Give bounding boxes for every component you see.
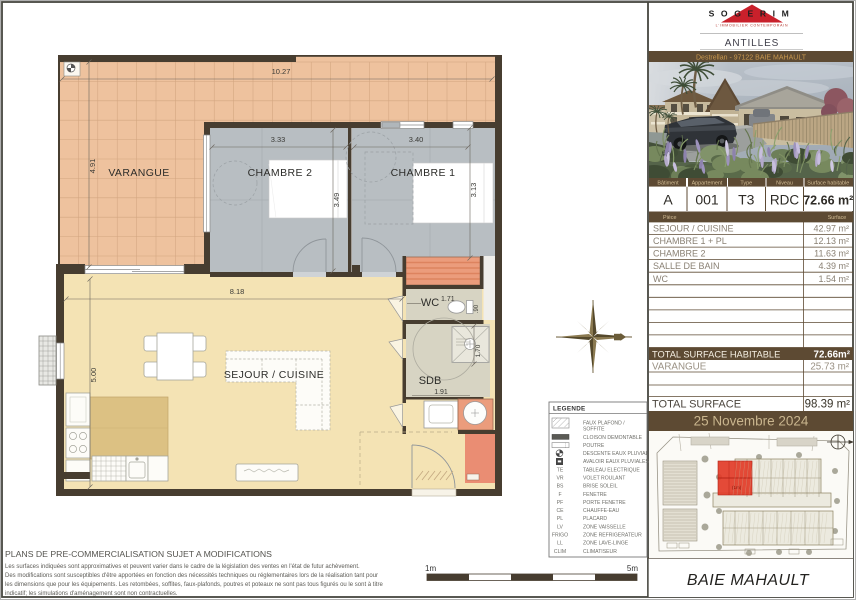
svg-text:TOTAL SURFACE HABITABLE: TOTAL SURFACE HABITABLE (652, 349, 780, 359)
svg-text:Type: Type (740, 181, 752, 187)
svg-text:SEJOUR / CUISINE: SEJOUR / CUISINE (224, 369, 324, 381)
svg-text:F: F (558, 492, 561, 498)
svg-text:CHAMBRE 2: CHAMBRE 2 (653, 249, 706, 259)
svg-text:5.00: 5.00 (89, 368, 98, 383)
svg-text:ZONE VAISSELLE: ZONE VAISSELLE (583, 524, 626, 530)
svg-text:CHAMBRE 1: CHAMBRE 1 (391, 167, 456, 179)
svg-text:42.97 m²: 42.97 m² (813, 224, 849, 234)
svg-text:001: 001 (695, 192, 719, 208)
svg-text:indicatif; les simulations d'a: indicatif; les simulations d'aménagement… (5, 591, 178, 597)
svg-text:CE: CE (556, 508, 564, 514)
svg-text:BRISE SOLEIL: BRISE SOLEIL (583, 484, 618, 490)
svg-text:PF: PF (557, 500, 564, 506)
svg-text:POUTRE: POUTRE (583, 443, 605, 449)
svg-text:CLIM: CLIM (554, 549, 566, 555)
svg-text:A: A (663, 192, 673, 208)
svg-text:72.66m²: 72.66m² (814, 350, 851, 361)
svg-text:VR: VR (556, 476, 563, 482)
svg-text:4.39 m²: 4.39 m² (818, 261, 849, 271)
svg-text:CHAUFFE-EAU: CHAUFFE-EAU (583, 508, 620, 514)
svg-text:PL: PL (557, 516, 563, 522)
svg-text:CLIMATISEUR: CLIMATISEUR (583, 549, 617, 555)
svg-text:SEJOUR / CUISINE: SEJOUR / CUISINE (653, 224, 734, 234)
svg-text:11.63 m²: 11.63 m² (814, 249, 849, 259)
svg-text:1.54 m²: 1.54 m² (818, 274, 849, 284)
svg-text:Bâtiment: Bâtiment (657, 181, 679, 187)
svg-text:VARANGUE: VARANGUE (108, 167, 169, 179)
svg-text:3.49: 3.49 (332, 193, 341, 208)
svg-text:10.27: 10.27 (272, 67, 291, 76)
svg-text:72.66 m²: 72.66 m² (803, 194, 853, 208)
svg-text:3.33: 3.33 (271, 135, 286, 144)
svg-text:Surface habitable: Surface habitable (807, 181, 849, 187)
svg-text:ANTILLES: ANTILLES (725, 38, 779, 49)
svg-text:Pièce: Pièce (663, 215, 677, 221)
svg-text:Appartement: Appartement (692, 181, 723, 187)
svg-text:5m: 5m (627, 564, 638, 573)
svg-text:98.39 m²: 98.39 m² (805, 399, 851, 411)
svg-text:1m: 1m (425, 564, 436, 573)
svg-text:SALLE DE BAIN: SALLE DE BAIN (653, 261, 720, 271)
svg-text:TE: TE (557, 467, 564, 473)
svg-text:VARANGUE: VARANGUE (652, 362, 707, 373)
svg-text:AVALOIR EAUX PLUVIALES: AVALOIR EAUX PLUVIALES (583, 459, 649, 465)
svg-text:FAUX PLAFOND /: FAUX PLAFOND / (583, 420, 625, 426)
svg-text:3.13: 3.13 (469, 183, 478, 198)
svg-text:FENETRE: FENETRE (583, 492, 607, 498)
svg-text:Niveau: Niveau (776, 181, 793, 187)
svg-text:(1m): (1m) (732, 485, 742, 490)
svg-text:T3: T3 (738, 192, 755, 208)
svg-text:Les surfaces indiquées sont ap: Les surfaces indiquées sont approximativ… (5, 564, 360, 570)
svg-text:SDB: SDB (419, 375, 442, 387)
svg-text:les dimensions que pour les éq: les dimensions que pour les équipements.… (5, 582, 383, 588)
svg-text:1.71: 1.71 (441, 296, 455, 303)
svg-text:PLANS DE PRE-COMMERCIALISATION: PLANS DE PRE-COMMERCIALISATION SUJET A M… (5, 549, 272, 559)
svg-text:SOGERIM: SOGERIM (709, 9, 796, 19)
svg-text:WC: WC (653, 274, 668, 284)
svg-text:Surface: Surface (828, 215, 847, 221)
svg-text:1.91: 1.91 (434, 389, 448, 396)
svg-text:PLACARD: PLACARD (583, 516, 607, 522)
svg-text:3.40: 3.40 (409, 135, 424, 144)
svg-text:ZONE LAVE-LINGE: ZONE LAVE-LINGE (583, 541, 629, 547)
svg-text:8.18: 8.18 (230, 287, 245, 296)
svg-text:BAIE MAHAULT: BAIE MAHAULT (687, 572, 810, 589)
svg-text:1.70: 1.70 (475, 344, 482, 357)
svg-text:BS: BS (557, 484, 564, 490)
svg-text:VOLET ROULANT: VOLET ROULANT (583, 476, 625, 482)
svg-text:4.91: 4.91 (88, 159, 97, 174)
svg-text:Des modifications sont suscept: Des modifications sont susceptibles d'êt… (5, 573, 378, 579)
svg-text:FRIGO: FRIGO (552, 533, 568, 539)
svg-text:DESCENTE EAUX PLUVIALES: DESCENTE EAUX PLUVIALES (583, 451, 656, 457)
svg-text:CLOISON DEMONTABLE: CLOISON DEMONTABLE (583, 435, 643, 441)
svg-text:CHAMBRE 1 + PL: CHAMBRE 1 + PL (653, 236, 727, 246)
svg-text:LL: LL (557, 541, 563, 547)
svg-text:TOTAL SURFACE: TOTAL SURFACE (652, 399, 741, 411)
svg-text:.90: .90 (474, 304, 480, 313)
svg-text:LV: LV (557, 524, 563, 530)
svg-text:RDC: RDC (770, 193, 799, 208)
svg-text:CHAMBRE 2: CHAMBRE 2 (248, 167, 313, 179)
svg-text:PORTE FENETRE: PORTE FENETRE (583, 500, 626, 506)
svg-text:25 Novembre 2024: 25 Novembre 2024 (694, 414, 809, 429)
svg-text:LEGENDE: LEGENDE (553, 406, 586, 413)
svg-text:12.13 m²: 12.13 m² (813, 236, 849, 246)
svg-text:25.73 m²: 25.73 m² (810, 362, 849, 373)
svg-text:TABLEAU ELECTRIQUE: TABLEAU ELECTRIQUE (583, 467, 640, 473)
svg-text:ZONE REFRIGERATEUR: ZONE REFRIGERATEUR (583, 533, 642, 539)
svg-text:Destrellan - 97122 BAIE MAHAUL: Destrellan - 97122 BAIE MAHAULT (696, 54, 807, 61)
svg-text:WC: WC (421, 297, 439, 309)
svg-text:L'IMMOBILIER CONTEMPORAIN: L'IMMOBILIER CONTEMPORAIN (716, 24, 789, 28)
svg-text:SOFFITE: SOFFITE (583, 427, 605, 433)
